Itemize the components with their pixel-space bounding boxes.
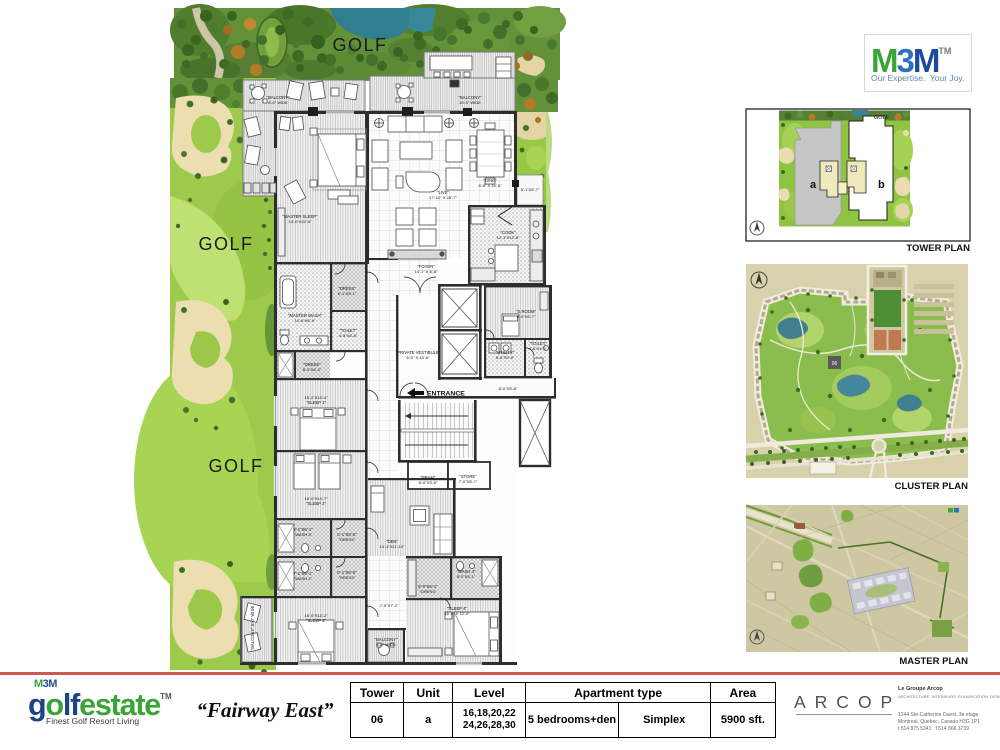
- svg-text:8'-6"X5'-6": 8'-6"X5'-6": [496, 355, 515, 360]
- svg-text:GOLF: GOLF: [208, 456, 263, 476]
- svg-text:5'-0" WIDE: 5'-0" WIDE: [376, 642, 396, 647]
- svg-text:4'-6"X4'-6": 4'-6"X4'-6": [529, 346, 548, 351]
- svg-text:7'-0"X5'-7": 7'-0"X5'-7": [459, 479, 478, 484]
- svg-text:CLUSTER PLAN: CLUSTER PLAN: [895, 481, 969, 492]
- svg-text:b: b: [878, 179, 885, 191]
- svg-text:"DRESS": "DRESS": [339, 575, 356, 580]
- svg-text:17'-10" X 28'-7": 17'-10" X 28'-7": [429, 195, 457, 200]
- svg-text:"SLEEP 2": "SLEEP 2": [306, 501, 326, 506]
- svg-text:6'-0" X 13'-6": 6'-0" X 13'-6": [406, 355, 430, 360]
- svg-text:4'-8"X6'-8": 4'-8"X6'-8": [339, 333, 358, 338]
- svg-text:MASTER PLAN: MASTER PLAN: [899, 656, 968, 667]
- svg-text:8'-0"X3'-6": 8'-0"X3'-6": [419, 480, 438, 485]
- svg-text:6'-1"X8'-1": 6'-1"X8'-1": [338, 291, 357, 296]
- svg-text:7'-5"X7'-2": 7'-5"X7'-2": [380, 603, 399, 608]
- svg-text:8'-3"X6'-3": 8'-3"X6'-3": [303, 367, 322, 372]
- svg-text:13'-1"X11'-10": 13'-1"X11'-10": [380, 544, 406, 549]
- svg-text:8'-0"X5'-8": 8'-0"X5'-8": [499, 386, 518, 391]
- svg-text:10'-0" WIDE: 10'-0" WIDE: [459, 100, 481, 105]
- svg-text:"SLEEP 1": "SLEEP 1": [306, 400, 326, 405]
- svg-text:TOWER PLAN: TOWER PLAN: [906, 243, 970, 254]
- svg-text:"DRESS": "DRESS": [339, 537, 356, 542]
- svg-text:GOLF: GOLF: [198, 234, 253, 254]
- svg-text:8'-9"X6'-7": 8'-9"X6'-7": [517, 314, 536, 319]
- svg-text:8'-0" WIDE: 8'-0" WIDE: [268, 100, 288, 105]
- svg-text:13'-0"X22'-6": 13'-0"X22'-6": [288, 219, 312, 224]
- svg-text:"WASH 3": "WASH 3": [294, 532, 313, 537]
- svg-text:10'-6"X6'-0": 10'-6"X6'-0": [295, 318, 316, 323]
- svg-text:16'-0" X 12'-0": 16'-0" X 12'-0": [444, 611, 470, 616]
- svg-text:ENTRANCE: ENTRANCE: [427, 391, 465, 398]
- svg-text:5'-1"X6'-7": 5'-1"X6'-7": [521, 187, 540, 192]
- svg-text:"BALCONY" 5'-0" WIDE: "BALCONY" 5'-0" WIDE: [250, 606, 255, 651]
- svg-text:a: a: [810, 179, 817, 191]
- svg-text:"SLEEP 3": "SLEEP 3": [306, 618, 326, 623]
- svg-text:GOLF: GOLF: [332, 35, 387, 55]
- svg-text:"DRESS": "DRESS": [420, 589, 437, 594]
- svg-text:GOLF: GOLF: [874, 115, 890, 121]
- svg-text:06: 06: [832, 361, 838, 367]
- svg-text:14'-1" X 8'-8": 14'-1" X 8'-8": [414, 269, 438, 274]
- svg-text:"WASH 2": "WASH 2": [294, 576, 313, 581]
- svg-text:12'-1"X12'-8": 12'-1"X12'-8": [496, 235, 520, 240]
- svg-text:8'-8" X 15'-6": 8'-8" X 15'-6": [478, 183, 502, 188]
- svg-text:8'-0"X5'-1": 8'-0"X5'-1": [457, 574, 476, 579]
